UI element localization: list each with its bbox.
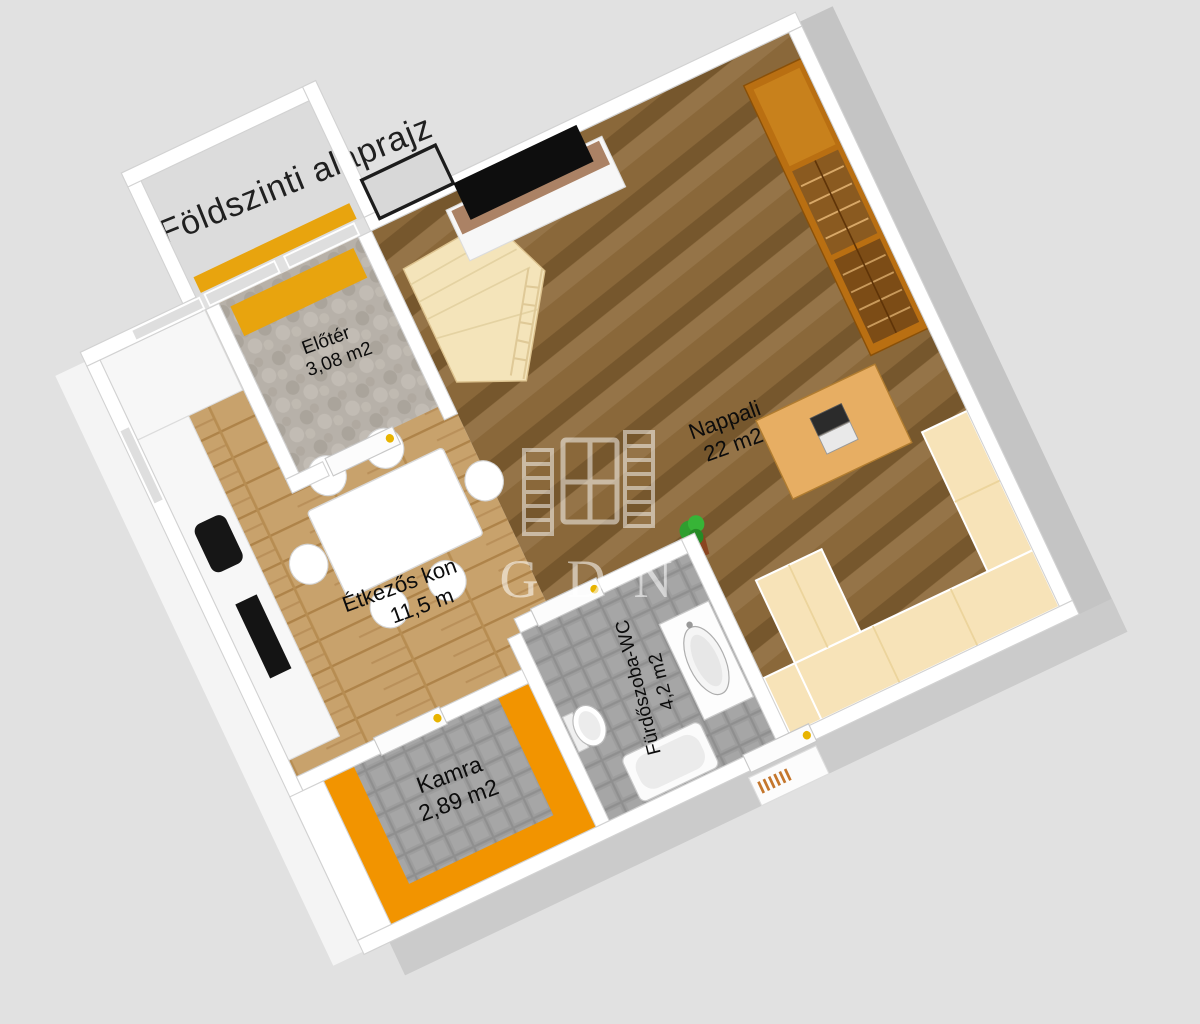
floorplan-rendering: Földszinti alaprajz [0, 0, 1200, 1024]
gdn-watermark-letters: GDN [500, 549, 701, 609]
floorplan-page: Földszinti alaprajz [0, 0, 1200, 1024]
